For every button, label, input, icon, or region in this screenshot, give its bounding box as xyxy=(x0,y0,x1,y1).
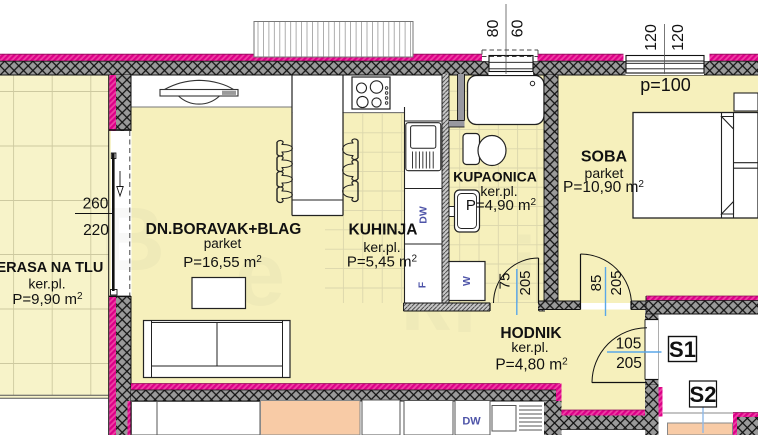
svg-text:DW: DW xyxy=(418,206,430,224)
svg-text:e: e xyxy=(235,225,285,325)
svg-text:120: 120 xyxy=(670,24,687,51)
svg-text:ker.pl.: ker.pl. xyxy=(511,339,548,355)
svg-text:75: 75 xyxy=(497,273,514,290)
svg-text:205: 205 xyxy=(608,270,625,295)
svg-text:ker.pl.: ker.pl. xyxy=(28,276,65,292)
svg-text:P=10,90 m2: P=10,90 m2 xyxy=(563,179,644,196)
svg-text:120: 120 xyxy=(643,24,660,51)
svg-text:P=5,45 m2: P=5,45 m2 xyxy=(347,254,418,271)
svg-text:105: 105 xyxy=(616,336,642,353)
svg-text:P=9,90 m2: P=9,90 m2 xyxy=(12,291,83,308)
svg-text:W: W xyxy=(461,276,473,286)
svg-text:i: i xyxy=(512,220,537,320)
svg-text:F: F xyxy=(417,281,429,288)
svg-text:B: B xyxy=(100,190,165,290)
svg-text:220: 220 xyxy=(83,222,109,239)
svg-text:P=4,90 m2: P=4,90 m2 xyxy=(466,197,537,214)
svg-text:DW: DW xyxy=(462,416,481,428)
svg-text:SOBA: SOBA xyxy=(581,149,628,166)
svg-text:parket: parket xyxy=(204,236,242,251)
svg-text:P=16,55 m2: P=16,55 m2 xyxy=(183,254,262,271)
svg-text:P=4,80 m2: P=4,80 m2 xyxy=(495,357,568,374)
svg-text:205: 205 xyxy=(616,355,642,372)
svg-text:85: 85 xyxy=(588,275,605,292)
svg-text:205: 205 xyxy=(517,270,534,295)
svg-text:80: 80 xyxy=(485,20,502,38)
svg-text:60: 60 xyxy=(510,20,527,38)
svg-text:TERASA NA TLU: TERASA NA TLU xyxy=(0,260,103,276)
svg-text:S1: S1 xyxy=(669,337,696,362)
svg-text:S2: S2 xyxy=(690,382,717,407)
svg-text:260: 260 xyxy=(83,196,109,213)
svg-text:p=100: p=100 xyxy=(640,75,691,95)
svg-text:KUHINJA: KUHINJA xyxy=(349,222,418,239)
